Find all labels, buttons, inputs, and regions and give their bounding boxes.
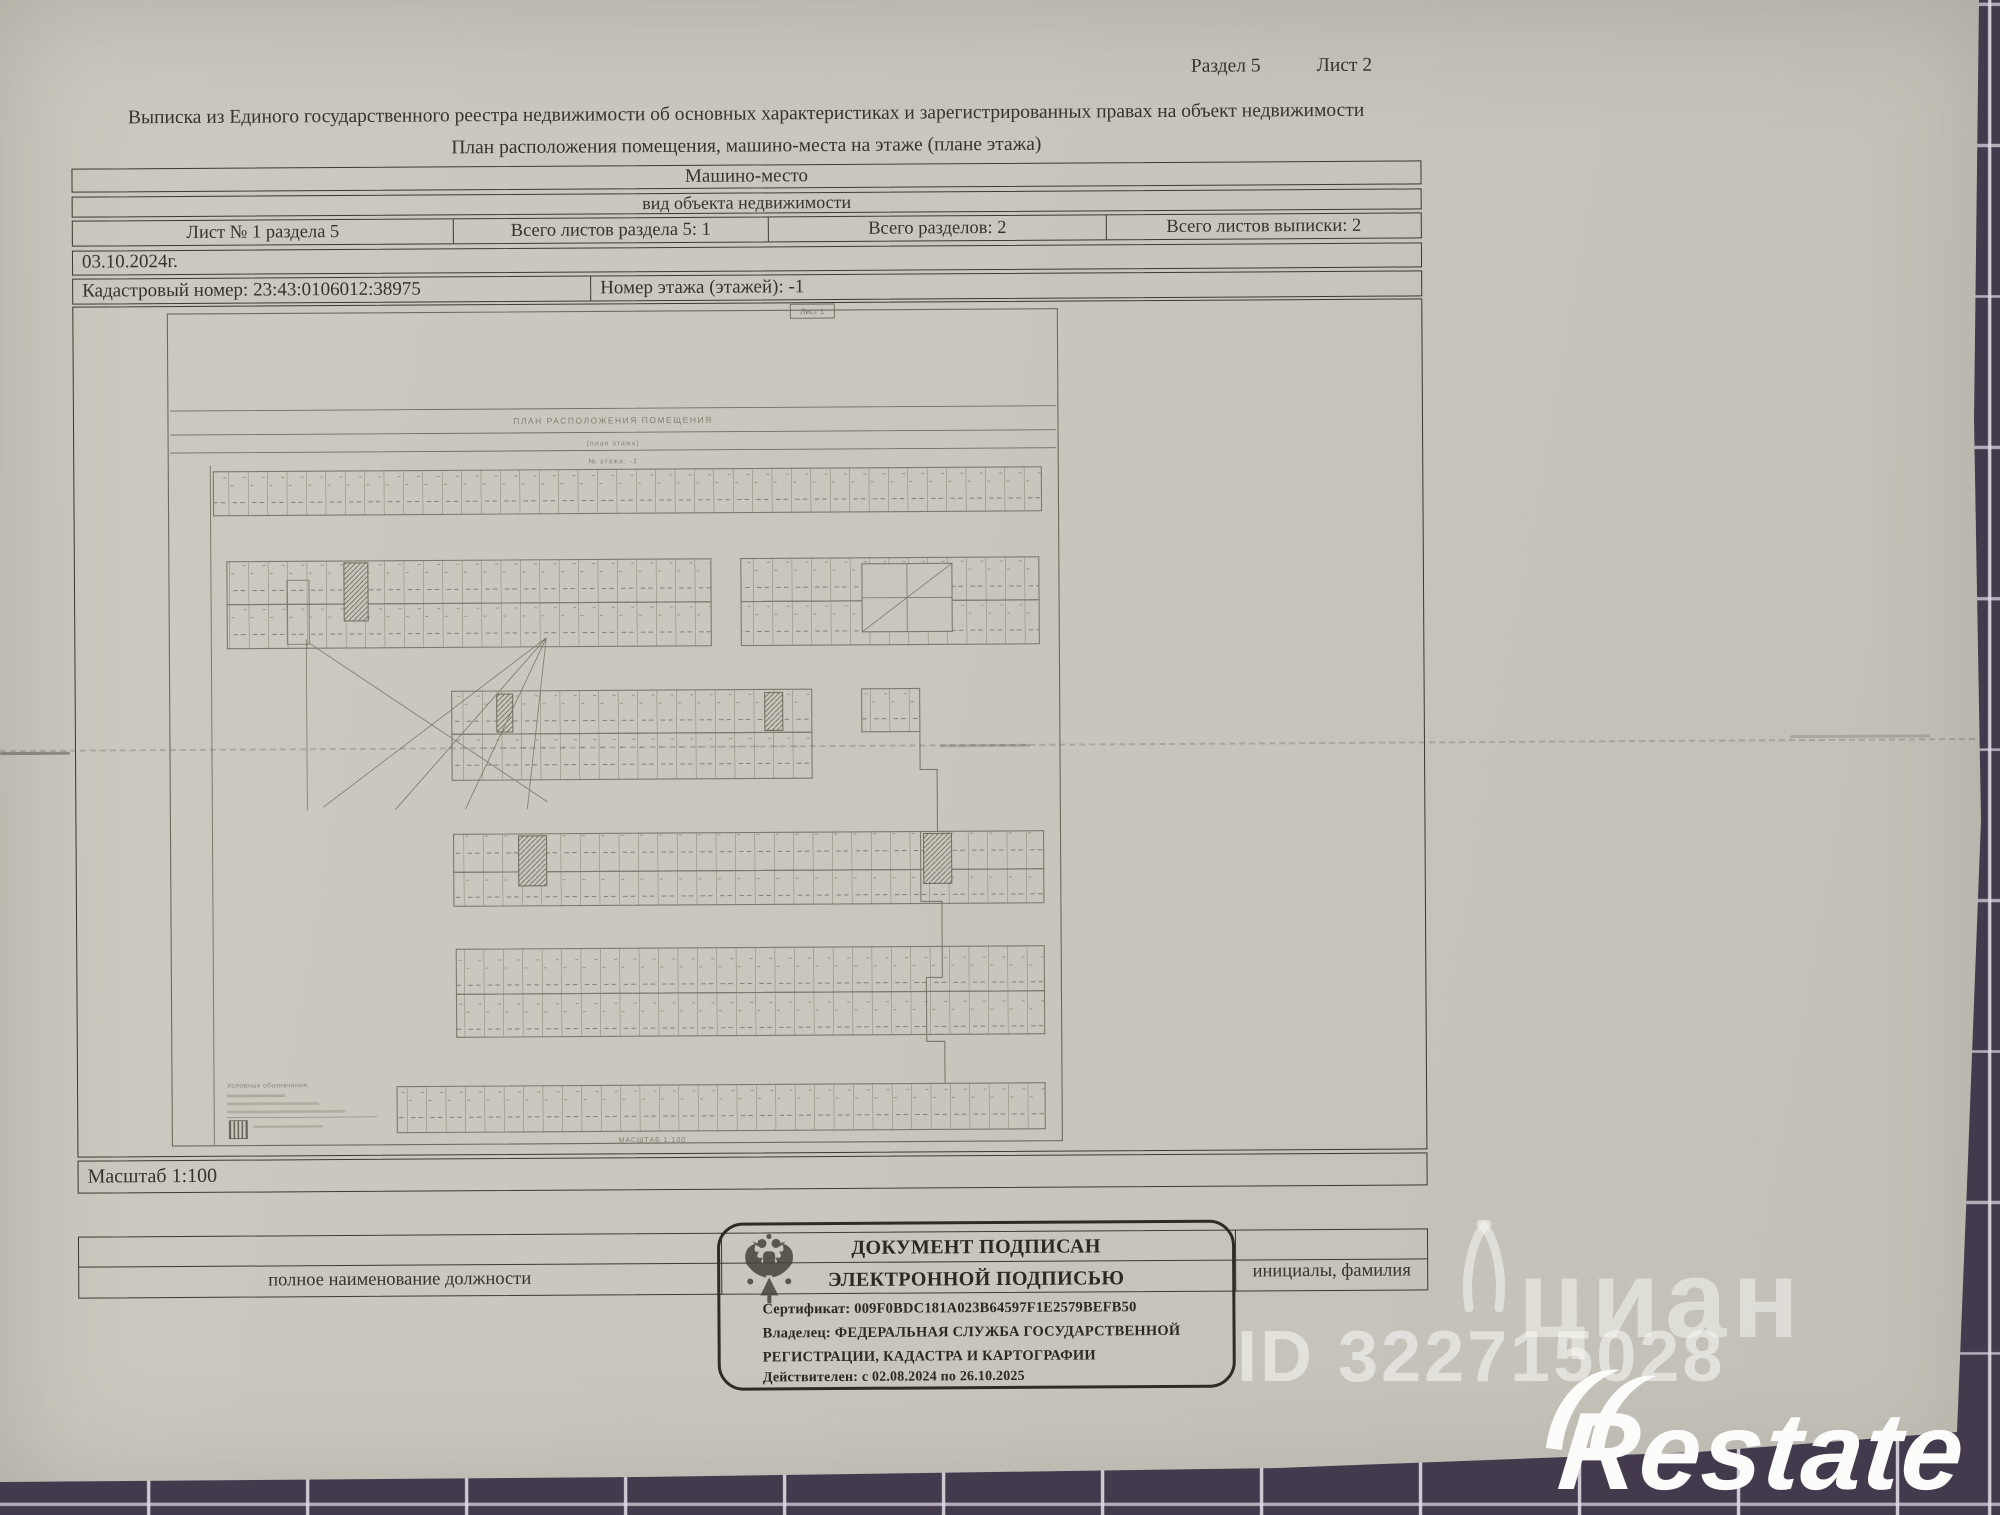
- total-sections-cell: Всего разделов: 2: [768, 215, 1106, 241]
- document-subtitle: План расположения помещения, машино-мест…: [71, 130, 1421, 162]
- plan-left-wall: [210, 466, 214, 1146]
- document-title: Выписка из Единого государственного реес…: [71, 98, 1421, 130]
- object-type-row: Машино-место: [71, 160, 1421, 192]
- object-type-caption: вид объекта недвижимости: [642, 191, 851, 213]
- plan-scale-note: МАСШТАБ 1:100: [619, 1137, 687, 1144]
- technical-room: [862, 563, 952, 632]
- name-caption: инициалы, фамилия: [1235, 1260, 1428, 1282]
- object-type: Машино-место: [685, 165, 808, 188]
- scale-row: Масштаб 1:100: [77, 1152, 1427, 1193]
- stamp-line2: ЭЛЕКТРОННОЙ ПОДПИСЬЮ: [720, 1267, 1232, 1293]
- photo-of-document: { "page": { "section_label": "Раздел 5",…: [0, 0, 2000, 1500]
- sheet-counts-row: Лист № 1 раздела 5 Всего листов раздела …: [72, 212, 1422, 246]
- cian-ribbon-icon: [1455, 1220, 1515, 1312]
- plan-legend-title: Условные обозначения:: [227, 1081, 310, 1090]
- plan-sheet-stamp-label: Лист 1: [800, 307, 825, 316]
- sheets-in-section-cell: Всего листов раздела 5: 1: [453, 217, 768, 243]
- plan-header-sub2: № этажа: -1: [588, 458, 638, 465]
- sheet-label: Лист 2: [1317, 54, 1373, 78]
- floor-number: Номер этажа (этажей): -1: [590, 271, 1421, 300]
- total-sheets-cell: Всего листов выписки: 2: [1106, 213, 1421, 239]
- extract-date: 03.10.2024г.: [82, 251, 178, 274]
- stamp-validity: Действителен: с 02.08.2024 по 26.10.2025: [763, 1369, 1025, 1387]
- stamp-owner-line1: Владелец: ФЕДЕРАЛЬНАЯ СЛУЖБА ГОСУДАРСТВЕ…: [763, 1323, 1181, 1343]
- crease-mark-mid: [940, 744, 1030, 748]
- plan-header-sub1: (план этажа): [586, 440, 639, 447]
- stamp-line1: ДОКУМЕНТ ПОДПИСАН: [720, 1235, 1232, 1261]
- plan-header-title: ПЛАН РАСПОЛОЖЕНИЯ ПОМЕЩЕНИЯ: [513, 415, 713, 426]
- sheet-info-cell: Лист № 1 раздела 5: [73, 219, 453, 245]
- scale-value: Масштаб 1:100: [88, 1165, 218, 1189]
- page-corner-labels: Раздел 5 Лист 2: [1191, 54, 1372, 78]
- section-label: Раздел 5: [1191, 54, 1261, 78]
- floor-plan-drawing: Лист 1 ПЛАН РАСПОЛОЖЕНИЯ ПОМЕЩЕНИЯ (план…: [72, 298, 1427, 1157]
- crease-mark-left: [0, 752, 70, 755]
- electronic-signature-stamp: ДОКУМЕНТ ПОДПИСАН ЭЛЕКТРОННОЙ ПОДПИСЬЮ С…: [717, 1220, 1236, 1391]
- plan-legend: Условные обозначения:: [227, 1081, 377, 1139]
- stamp-certificate: Сертификат: 009F0BDC181A023B64597F1E2579…: [762, 1299, 1136, 1318]
- cadastral-number: Кадастровый номер: 23:43:0106012:38975: [73, 276, 590, 303]
- legend-barcode: [229, 1121, 247, 1139]
- stamp-owner-line2: РЕГИСТРАЦИИ, КАДАСТРА И КАРТОГРАФИИ: [763, 1347, 1096, 1366]
- restate-logo: Restate: [1553, 1388, 1971, 1515]
- position-caption: полное наименование должности: [78, 1268, 721, 1293]
